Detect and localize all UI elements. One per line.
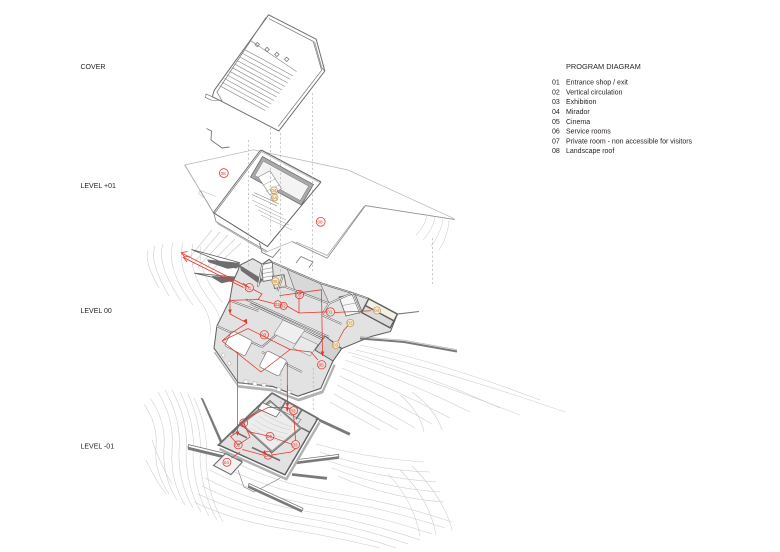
svg-text:Mirador: Mirador: [566, 109, 590, 116]
svg-text:03: 03: [552, 99, 560, 106]
svg-text:05: 05: [267, 434, 273, 439]
svg-text:01: 01: [552, 80, 560, 87]
svg-text:LEVEL +01: LEVEL +01: [81, 183, 116, 190]
svg-text:05: 05: [319, 363, 325, 368]
svg-text:01: 01: [241, 421, 247, 426]
svg-text:Entrance shop / exit: Entrance shop / exit: [566, 80, 628, 87]
svg-text:05: 05: [552, 119, 560, 126]
svg-text:PROGRAM DIAGRAM: PROGRAM DIAGRAM: [566, 62, 641, 71]
svg-text:04: 04: [552, 109, 560, 116]
svg-text:08: 08: [221, 171, 227, 176]
svg-text:05: 05: [296, 292, 302, 297]
svg-text:04: 04: [374, 308, 380, 313]
svg-text:02: 02: [235, 443, 241, 448]
svg-text:Cinema: Cinema: [566, 119, 590, 126]
svg-text:08: 08: [552, 148, 560, 155]
svg-text:Landscape roof: Landscape roof: [566, 148, 614, 155]
svg-text:01: 01: [246, 286, 252, 291]
svg-text:LEVEL 00: LEVEL 00: [81, 308, 112, 315]
svg-text:04: 04: [271, 188, 277, 193]
svg-text:Exhibition: Exhibition: [566, 99, 596, 106]
svg-text:Vertical circulation: Vertical circulation: [566, 89, 623, 96]
svg-text:06: 06: [552, 129, 560, 136]
svg-text:03: 03: [293, 442, 299, 447]
svg-text:06: 06: [273, 279, 279, 284]
svg-text:01: 01: [327, 310, 333, 315]
svg-text:03: 03: [347, 321, 353, 326]
svg-text:07: 07: [552, 138, 560, 145]
svg-text:03: 03: [261, 333, 267, 338]
svg-text:03: 03: [291, 408, 297, 413]
svg-text:03: 03: [333, 343, 339, 348]
svg-text:02: 02: [552, 89, 560, 96]
svg-text:LEVEL -01: LEVEL -01: [81, 444, 115, 451]
svg-text:04: 04: [224, 460, 230, 465]
svg-text:Private room - non accessible: Private room - non accessible for visito…: [566, 138, 693, 145]
svg-text:02: 02: [275, 302, 281, 307]
svg-text:08: 08: [318, 220, 324, 225]
svg-text:04: 04: [272, 195, 278, 200]
svg-text:COVER: COVER: [81, 64, 106, 71]
svg-text:Service rooms: Service rooms: [566, 129, 611, 136]
svg-text:04: 04: [265, 453, 271, 458]
svg-text:02: 02: [281, 304, 287, 309]
